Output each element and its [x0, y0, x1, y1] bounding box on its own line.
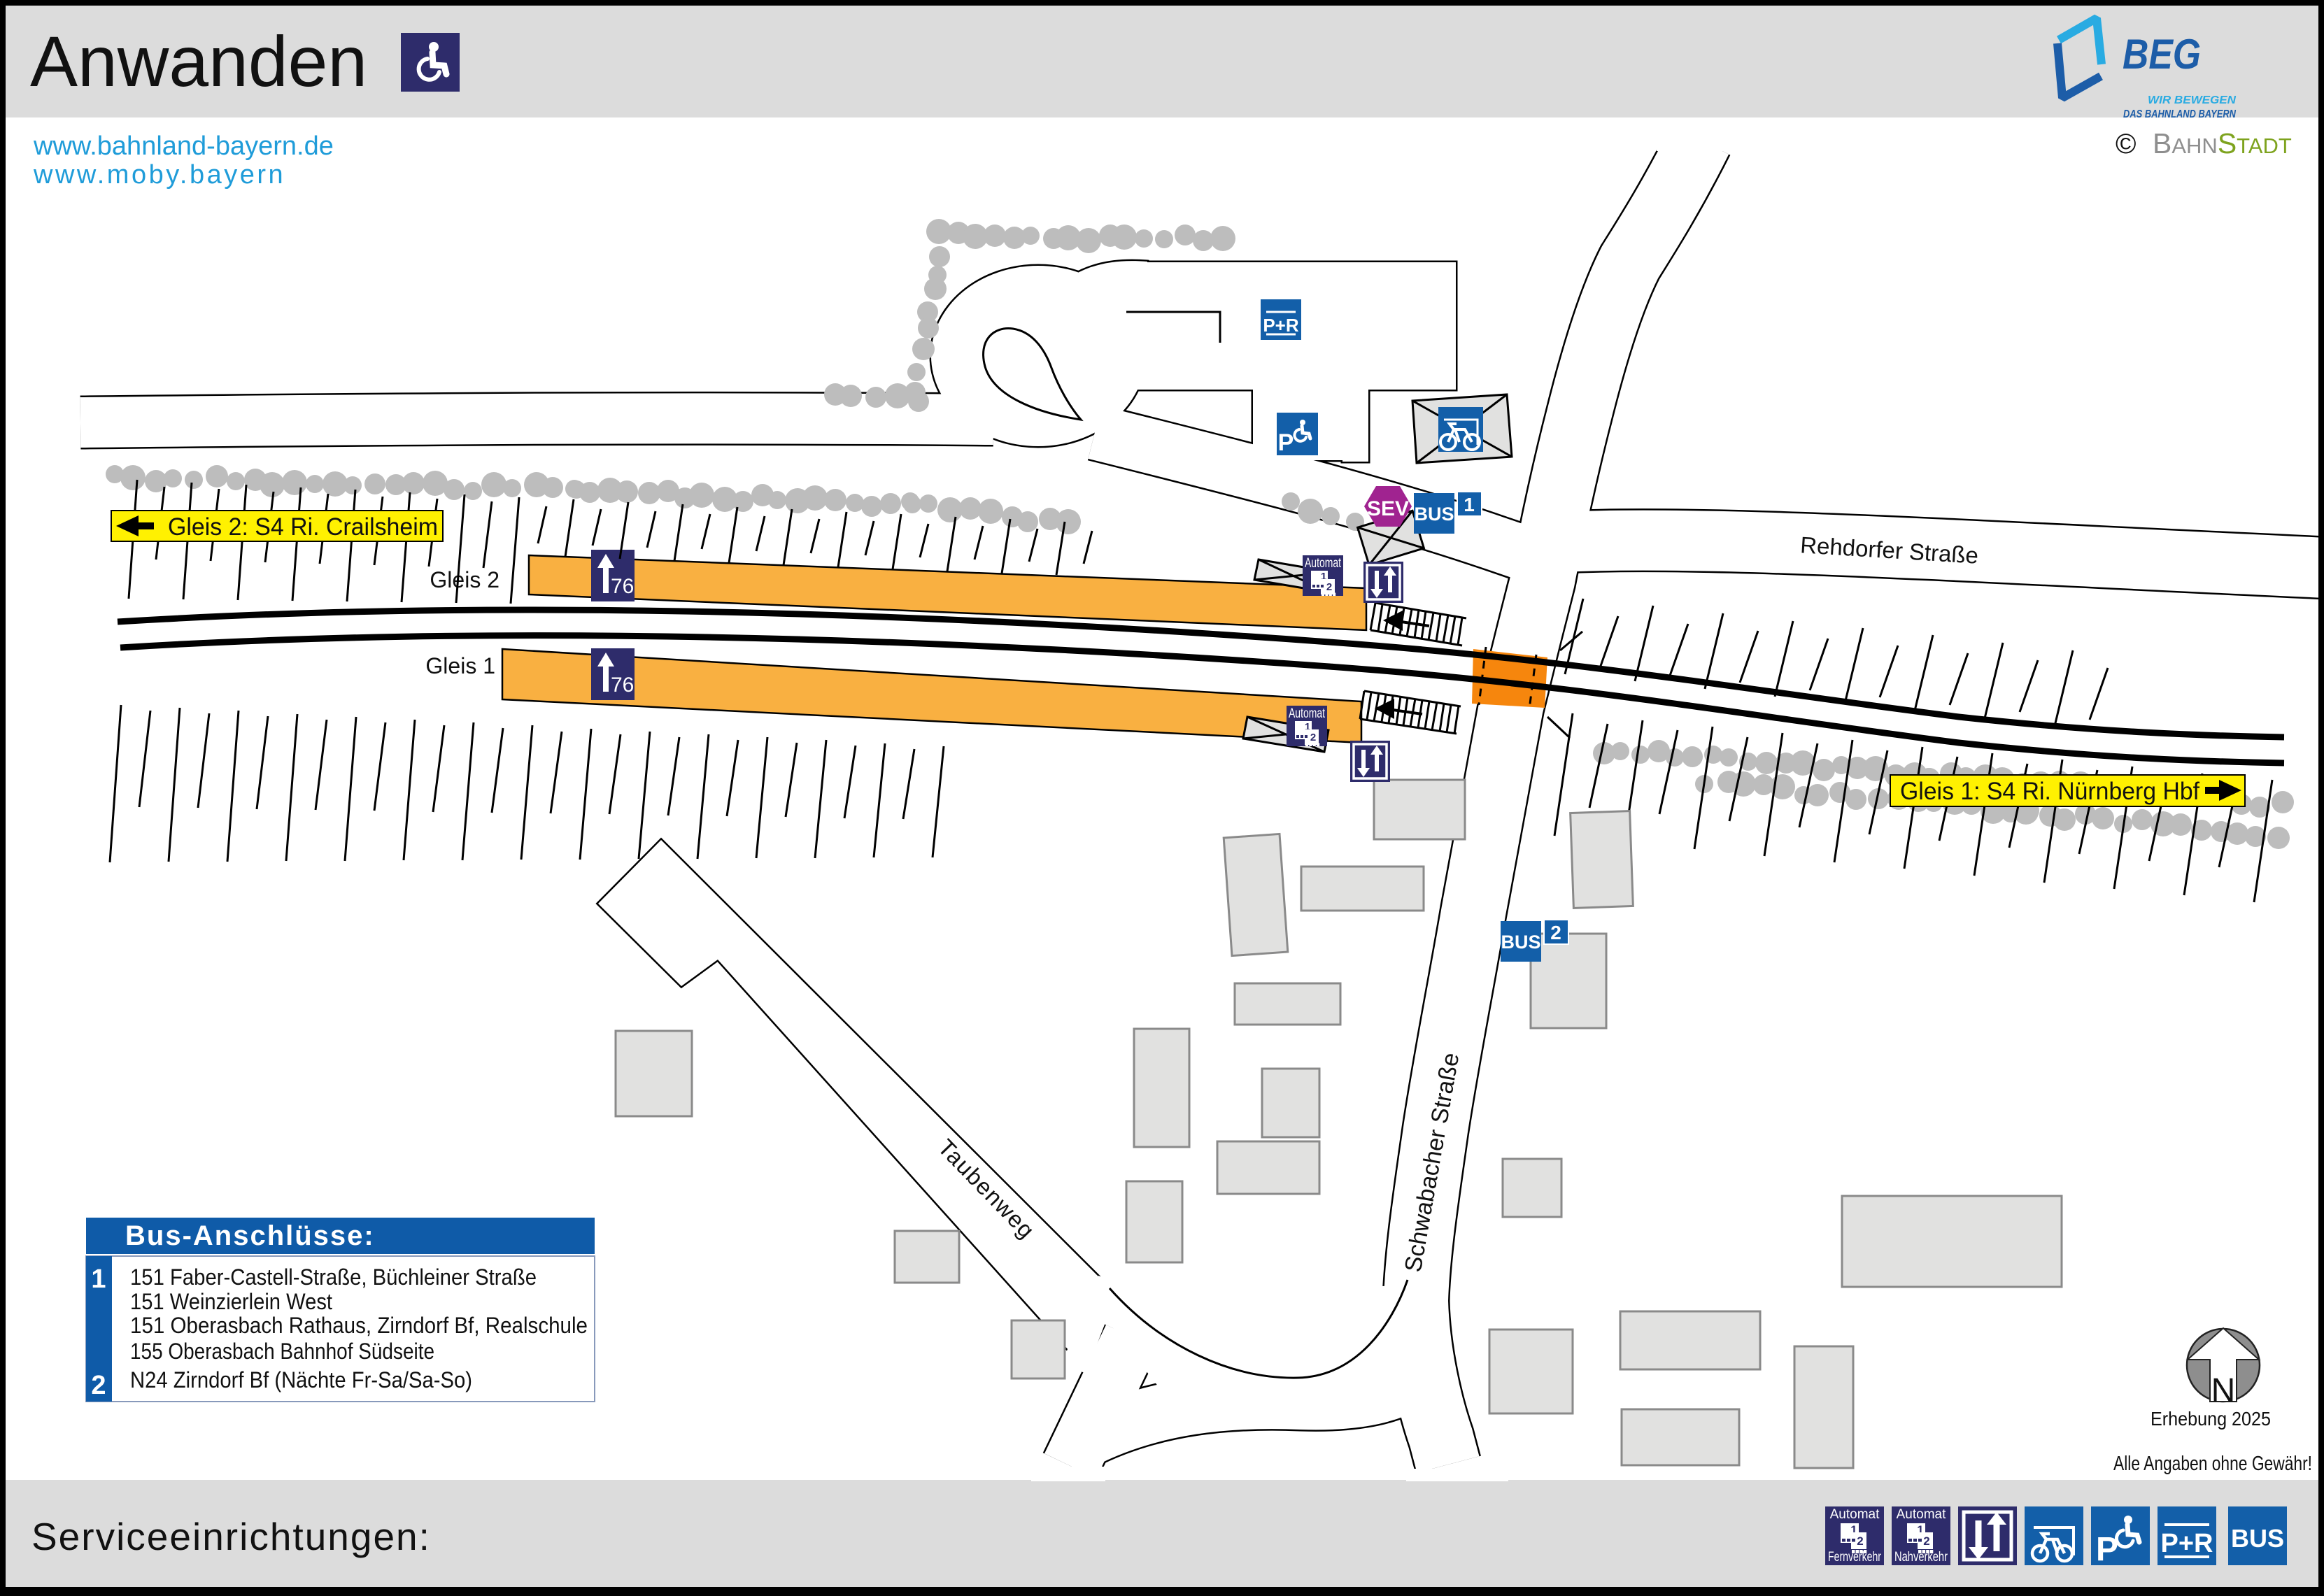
- svg-text:Bus-Anschlüsse:: Bus-Anschlüsse:: [125, 1220, 375, 1251]
- svg-text:2: 2: [91, 1371, 106, 1400]
- svg-text:BUS: BUS: [1501, 932, 1540, 953]
- svg-text:DAS BAHNLAND BAYERN: DAS BAHNLAND BAYERN: [2123, 108, 2236, 120]
- svg-text:Alle Angaben ohne Gewähr!: Alle Angaben ohne Gewähr!: [2113, 1453, 2312, 1475]
- svg-text:Gleis 2: Gleis 2: [430, 567, 499, 592]
- svg-text:P+R: P+R: [1263, 315, 1299, 336]
- svg-text:Gleis 1: S4 Ri. Nürnberg Hbf: Gleis 1: S4 Ri. Nürnberg Hbf: [1900, 778, 2199, 805]
- svg-text:P: P: [1278, 429, 1294, 456]
- svg-text:©: ©: [2116, 129, 2136, 159]
- svg-text:76: 76: [611, 674, 634, 697]
- svg-text:Automat: Automat: [1830, 1507, 1880, 1522]
- svg-text:2: 2: [1550, 922, 1561, 943]
- svg-text:BUS: BUS: [1414, 504, 1454, 525]
- svg-text:155 Oberasbach Bahnhof Südseit: 155 Oberasbach Bahnhof Südseite: [130, 1339, 434, 1364]
- svg-text:Automat: Automat: [1897, 1507, 1946, 1522]
- svg-text:SEV: SEV: [1367, 497, 1409, 520]
- svg-text:151 Weinzierlein West: 151 Weinzierlein West: [130, 1289, 332, 1314]
- svg-text:151 Faber-Castell-Straße, Büch: 151 Faber-Castell-Straße, Büchleiner Str…: [130, 1264, 537, 1290]
- svg-text:Gleis 1: Gleis 1: [425, 653, 495, 678]
- svg-text:Fernverkehr: Fernverkehr: [1828, 1550, 1881, 1565]
- svg-text:151 Oberasbach Rathaus, Zirndo: 151 Oberasbach Rathaus, Zirndorf Bf, Rea…: [130, 1313, 588, 1338]
- svg-text:www.bahnland-bayern.de: www.bahnland-bayern.de: [33, 131, 334, 161]
- svg-text:www.moby.bayern: www.moby.bayern: [33, 160, 285, 190]
- svg-text:Automat: Automat: [1305, 556, 1342, 571]
- svg-text:Gleis 2: S4 Ri. Crailsheim: Gleis 2: S4 Ri. Crailsheim: [168, 513, 438, 541]
- svg-text:P+R: P+R: [2161, 1529, 2213, 1558]
- svg-text:Erhebung 2025: Erhebung 2025: [2151, 1408, 2271, 1430]
- svg-text:N: N: [2211, 1372, 2236, 1409]
- svg-text:2: 2: [1923, 1534, 1929, 1548]
- svg-text:N24 Zirndorf Bf (Nächte Fr-Sa/: N24 Zirndorf Bf (Nächte Fr-Sa/Sa-So): [130, 1367, 472, 1392]
- svg-text:Serviceeinrichtungen:: Serviceeinrichtungen:: [31, 1515, 431, 1558]
- svg-text:Anwanden: Anwanden: [30, 22, 367, 101]
- svg-text:WIR BEWEGEN: WIR BEWEGEN: [2148, 94, 2236, 106]
- svg-text:BEG: BEG: [2123, 31, 2201, 78]
- svg-text:2: 2: [1310, 732, 1316, 743]
- svg-text:2: 2: [1326, 581, 1332, 593]
- svg-text:76: 76: [611, 575, 634, 598]
- svg-text:1: 1: [91, 1264, 106, 1294]
- svg-text:2: 2: [1857, 1534, 1863, 1548]
- svg-text:1: 1: [1464, 494, 1475, 515]
- svg-text:BUS: BUS: [2231, 1524, 2284, 1553]
- svg-text:Automat: Automat: [1289, 706, 1326, 721]
- svg-text:Nahverkehr: Nahverkehr: [1894, 1550, 1948, 1565]
